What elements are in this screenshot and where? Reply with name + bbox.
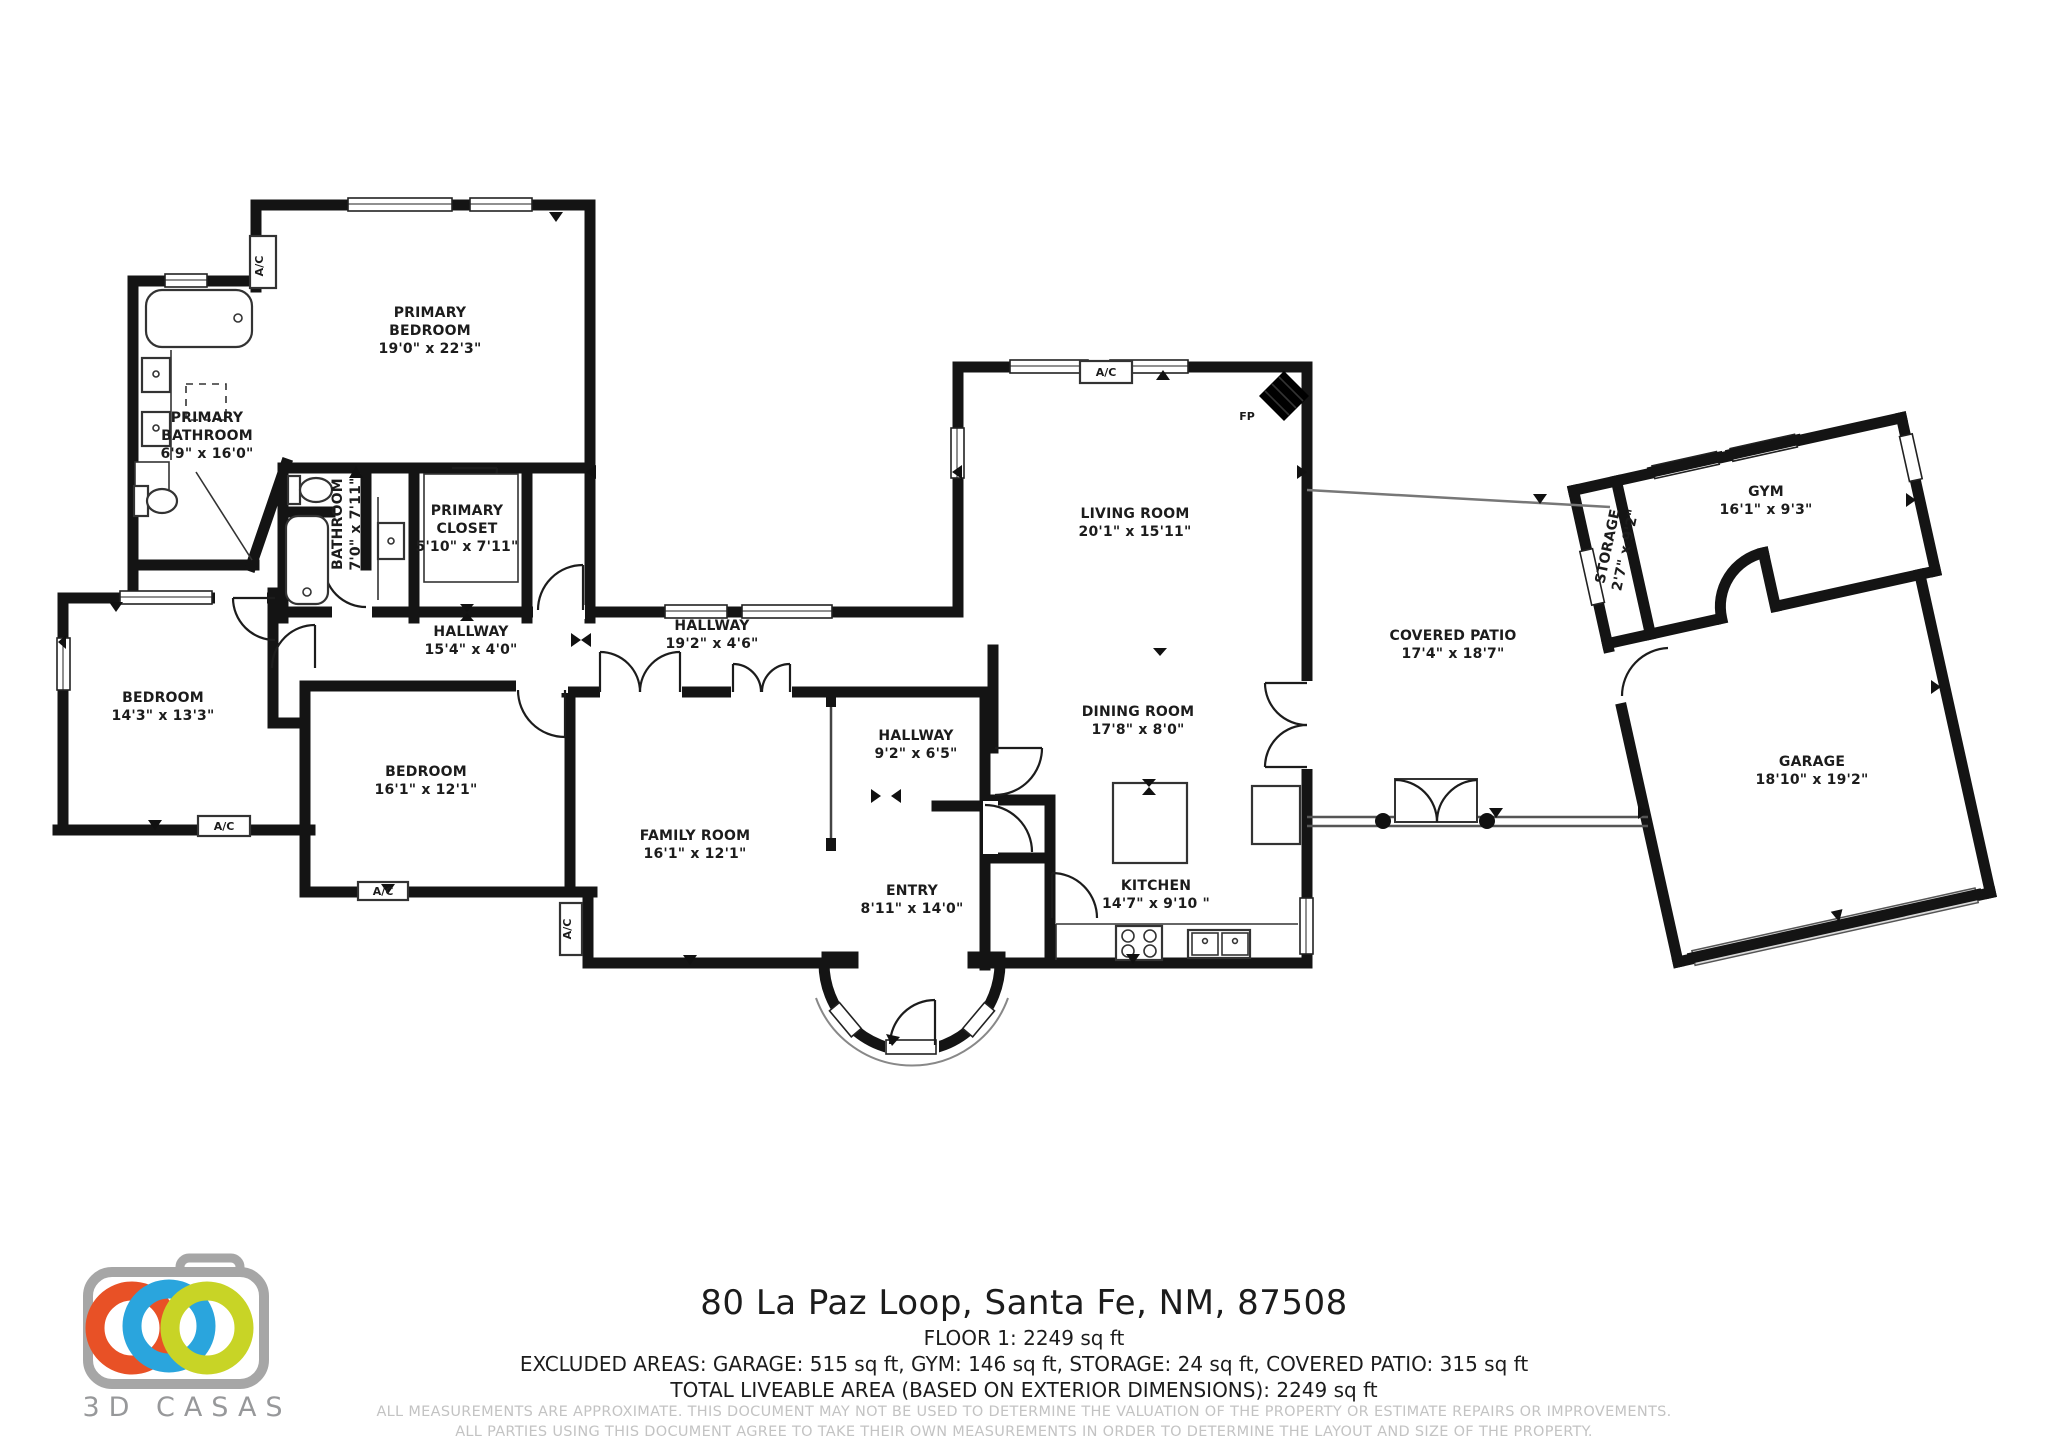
room-label-hallway-3: HALLWAY9'2" x 6'5" [874, 728, 957, 762]
disclaimer-line-2: ALL PARTIES USING THIS DOCUMENT AGREE TO… [0, 1424, 2048, 1440]
unit-label-ac-primary-bedroom: A/C [253, 256, 266, 277]
garage-wing-walls [1565, 409, 2014, 970]
room-label-hallway-1: HALLWAY15'4" x 4'0" [424, 624, 517, 658]
toilet-primary-bowl [147, 489, 177, 513]
refrigerator [1252, 786, 1300, 844]
floorplan-page: PRIMARYBEDROOM19'0" x 22'3"PRIMARYBATHRO… [0, 0, 2048, 1449]
room-label-entry: ENTRY8'11" x 14'0" [861, 883, 964, 917]
room-label-covered-patio: COVERED PATIO17'4" x 18'7" [1389, 628, 1516, 662]
patio-and-thin-lines [816, 490, 1648, 1066]
unit-label-fireplace: FP [1239, 410, 1255, 423]
disclaimer-line-1: ALL MEASUREMENTS ARE APPROXIMATE. THIS D… [0, 1404, 2048, 1420]
total-area-line: TOTAL LIVEABLE AREA (BASED ON EXTERIOR D… [0, 1378, 2048, 1402]
unit-label-ac-bedroom-2: A/C [373, 885, 394, 898]
room-label-living-room: LIVING ROOM20'1" x 15'11" [1079, 506, 1192, 540]
unit-label-ac-family-room: A/C [561, 919, 574, 940]
wing-patio-door [1622, 648, 1668, 696]
room-label-gym: GYM16'1" x 9'3" [1719, 484, 1812, 518]
unit-label-ac-bedroom-1: A/C [214, 820, 235, 833]
shower-glass [196, 472, 252, 560]
excluded-areas-line: EXCLUDED AREAS: GARAGE: 515 sq ft, GYM: … [0, 1352, 2048, 1376]
room-label-bathroom: BATHROOM7'0" x 7'11" [330, 477, 364, 570]
room-label-bedroom-2: BEDROOM16'1" x 12'1" [375, 764, 478, 798]
room-label-family-room: FAMILY ROOM16'1" x 12'1" [640, 828, 750, 862]
toilet-tank [288, 476, 300, 504]
room-label-garage: GARAGE18'10" x 19'2" [1756, 754, 1869, 788]
unit-label-ac-living-room: A/C [1096, 366, 1117, 379]
room-label-primary-bedroom: PRIMARYBEDROOM19'0" x 22'3" [379, 305, 482, 357]
room-label-kitchen: KITCHEN14'7" x 9'10 " [1102, 878, 1210, 912]
address-line: 80 La Paz Loop, Santa Fe, NM, 87508 [0, 1283, 2048, 1323]
room-label-hallway-2: HALLWAY19'2" x 4'6" [665, 618, 758, 652]
toilet-bowl [300, 478, 332, 502]
floor-area-line: FLOOR 1: 2249 sq ft [0, 1326, 2048, 1350]
floor-plan-canvas: PRIMARYBEDROOM19'0" x 22'3"PRIMARYBATHRO… [0, 0, 2048, 1250]
room-label-primary-bathroom: PRIMARYBATHROOM6'9" x 16'0" [160, 410, 253, 462]
room-label-bedroom-1: BEDROOM14'3" x 13'3" [112, 690, 215, 724]
room-label-dining-room: DINING ROOM17'8" x 8'0" [1082, 704, 1195, 738]
